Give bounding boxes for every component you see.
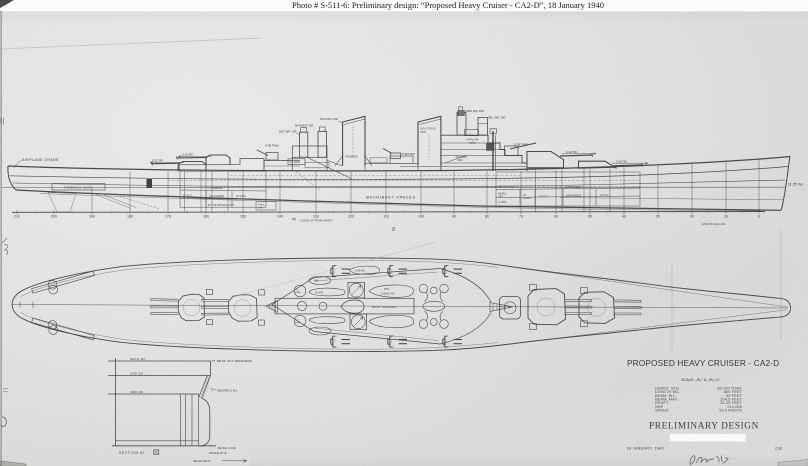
svg-text:V.P. MAST: V.P. MAST — [290, 161, 301, 164]
svg-text:40: 40 — [622, 215, 626, 219]
svg-text:16″POWDER: 16″POWDER — [209, 195, 224, 198]
svg-text:80: 80 — [485, 215, 489, 219]
svg-text:GEN: GEN — [498, 197, 503, 199]
svg-text:18 JANUARY, 1940: 18 JANUARY, 1940 — [627, 447, 665, 451]
svg-text:QUAD: QUAD — [295, 291, 302, 294]
svg-text:3RD DK.: 3RD DK. — [130, 390, 145, 394]
svg-text:10: 10 — [724, 215, 728, 219]
svg-text:3-12″/50: 3-12″/50 — [616, 159, 627, 163]
svg-text:MAIN BAT. DIR.: MAIN BAT. DIR. — [320, 117, 339, 121]
svg-text:& CANS: & CANS — [498, 201, 507, 204]
svg-text:STOWAGE: STOWAGE — [345, 156, 358, 159]
svg-text:5″/38 TWIN: 5″/38 TWIN — [402, 152, 415, 156]
svg-text:20: 20 — [690, 215, 694, 219]
svg-text:SEL. BAT. DIR.: SEL. BAT. DIR. — [488, 115, 506, 119]
svg-text:SECTION AT: SECTION AT — [119, 451, 145, 455]
svg-text:END OF HULL DK.: END OF HULL DK. — [702, 222, 726, 226]
svg-text:QUAD: QUAD — [295, 321, 302, 324]
svg-text:40′ M.B.: 40′ M.B. — [315, 291, 324, 294]
svg-text:12″ H.C.: 12″ H.C. — [539, 195, 549, 198]
svg-text:140: 140 — [277, 215, 283, 219]
svg-text:B.PS: B.PS — [470, 142, 476, 145]
svg-text:FDN.: FDN. — [421, 130, 427, 134]
svg-text:3-12″/50: 3-12″/50 — [152, 159, 163, 163]
svg-text:190: 190 — [89, 215, 95, 219]
svg-text:110: 110 — [383, 215, 389, 219]
svg-text:16″POWDER: 16″POWDER — [566, 186, 581, 189]
svg-text:O.B.: O.B. — [775, 446, 783, 450]
svg-text:70: 70 — [519, 215, 523, 219]
svg-text:MAIN BAT. DIR.: MAIN BAT. DIR. — [295, 123, 314, 127]
svg-text:3-12″/50: 3-12″/50 — [182, 153, 193, 157]
svg-text:4″POWDER: 4″POWDER — [209, 187, 223, 190]
svg-text:31.25′ W.L.: 31.25′ W.L. — [788, 183, 805, 187]
svg-text:SCALE: ₁⁜₂″ & ₁⁜₆″=1′: SCALE: ₁⁜₂″ & ₁⁜₆″=1′ — [681, 378, 720, 382]
svg-text:2ND DK.: 2ND DK. — [130, 372, 145, 376]
svg-text:SCALE ⅛″=1′: SCALE ⅛″=1′ — [209, 451, 228, 455]
svg-text:5″/38 TWIN: 5″/38 TWIN — [514, 143, 528, 147]
svg-text:16″POWDER: 16″POWDER — [566, 194, 581, 197]
svg-text:PROPOSED HEAVY CRUISER - CA2-D: PROPOSED HEAVY CRUISER - CA2-D — [627, 358, 779, 368]
svg-text:160: 160 — [203, 215, 209, 219]
svg-text:STEEL: STEEL — [258, 204, 266, 206]
svg-text:120: 120 — [348, 215, 354, 219]
svg-text:½ RAD OF PROP SHAFT: ½ RAD OF PROP SHAFT — [300, 219, 333, 223]
svg-text:30: 30 — [656, 215, 660, 219]
svg-text:SPEED: SPEED — [655, 408, 669, 413]
svg-text:33.5 KNOTS: 33.5 KNOTS — [719, 408, 742, 413]
svg-text:BLISTER 2′ W.L.: BLISTER 2′ W.L. — [218, 389, 238, 393]
svg-text:NO.2 STACK: NO.2 STACK — [421, 127, 436, 131]
svg-text:BASE LINE: BASE LINE — [218, 446, 236, 450]
svg-text:DEK: DEK — [258, 208, 263, 210]
svg-text:90: 90 — [452, 215, 456, 219]
svg-text:3-12″/50: 3-12″/50 — [566, 150, 577, 154]
svg-text:POWD: POWD — [523, 197, 531, 200]
svg-text:Photo # S-511-6: Prelimina: Photo # S-511-6: Preliminary design: “Pr… — [292, 0, 604, 10]
svg-text:50: 50 — [588, 215, 592, 219]
svg-text:MACHINERY SPACES: MACHINERY SPACES — [366, 196, 416, 200]
svg-text:STEERING GEAR: STEERING GEAR — [64, 185, 93, 189]
svg-text:MAIN DK.: MAIN DK. — [130, 357, 147, 361]
svg-text:150: 150 — [240, 215, 246, 219]
svg-text:14″ H.C.: 14″ H.C. — [600, 194, 610, 197]
svg-text:FDN.: FDN. — [458, 159, 464, 162]
svg-text:180: 180 — [127, 215, 133, 219]
svg-text:WHL: WHL — [384, 288, 390, 291]
svg-text:170: 170 — [165, 215, 171, 219]
svg-text:5″/38 TWIN: 5″/38 TWIN — [265, 144, 279, 148]
svg-text:2-26′ BR: 2-26′ BR — [355, 270, 365, 273]
svg-text:MN.DK. 43′-6″ ABOVE BASE: MN.DK. 43′-6″ ABOVE BASE — [217, 359, 252, 363]
svg-text:210: 210 — [14, 215, 20, 219]
svg-text:BOAT CRANES: BOAT CRANES — [372, 305, 396, 309]
svg-text:12″ MAG: 12″ MAG — [236, 195, 246, 198]
svg-text:100: 100 — [418, 215, 424, 219]
svg-text:DET. BAT. DIR.: DET. BAT. DIR. — [279, 130, 297, 134]
svg-text:MAIN BAT. DIR.: MAIN BAT. DIR. — [466, 109, 485, 113]
svg-text:DIESEL: DIESEL — [498, 194, 507, 196]
svg-text:0: 0 — [758, 215, 760, 219]
svg-text:Bᴇᴀᴍ=104.5′: Bᴇᴀᴍ=104.5′ — [194, 459, 211, 463]
svg-text:200: 200 — [51, 215, 57, 219]
svg-text:& AWHL P.B.: & AWHL P.B. — [381, 292, 395, 295]
svg-text:PRELIMINARY DESIGN: PRELIMINARY DESIGN — [649, 422, 759, 432]
svg-text:BATTLE GEN.: BATTLE GEN. — [498, 185, 514, 188]
svg-text:AIRPLANE CRANE: AIRPLANE CRANE — [22, 158, 59, 162]
svg-text:60: 60 — [554, 215, 558, 219]
